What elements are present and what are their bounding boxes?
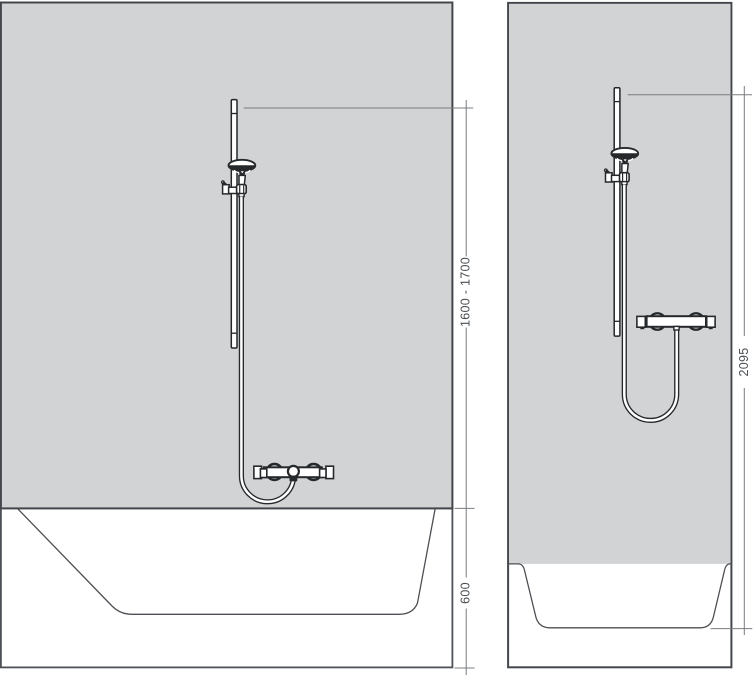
svg-text:2095: 2095 (737, 347, 751, 376)
svg-text:600: 600 (458, 582, 472, 604)
svg-text:1600 - 1700: 1600 - 1700 (458, 257, 472, 327)
